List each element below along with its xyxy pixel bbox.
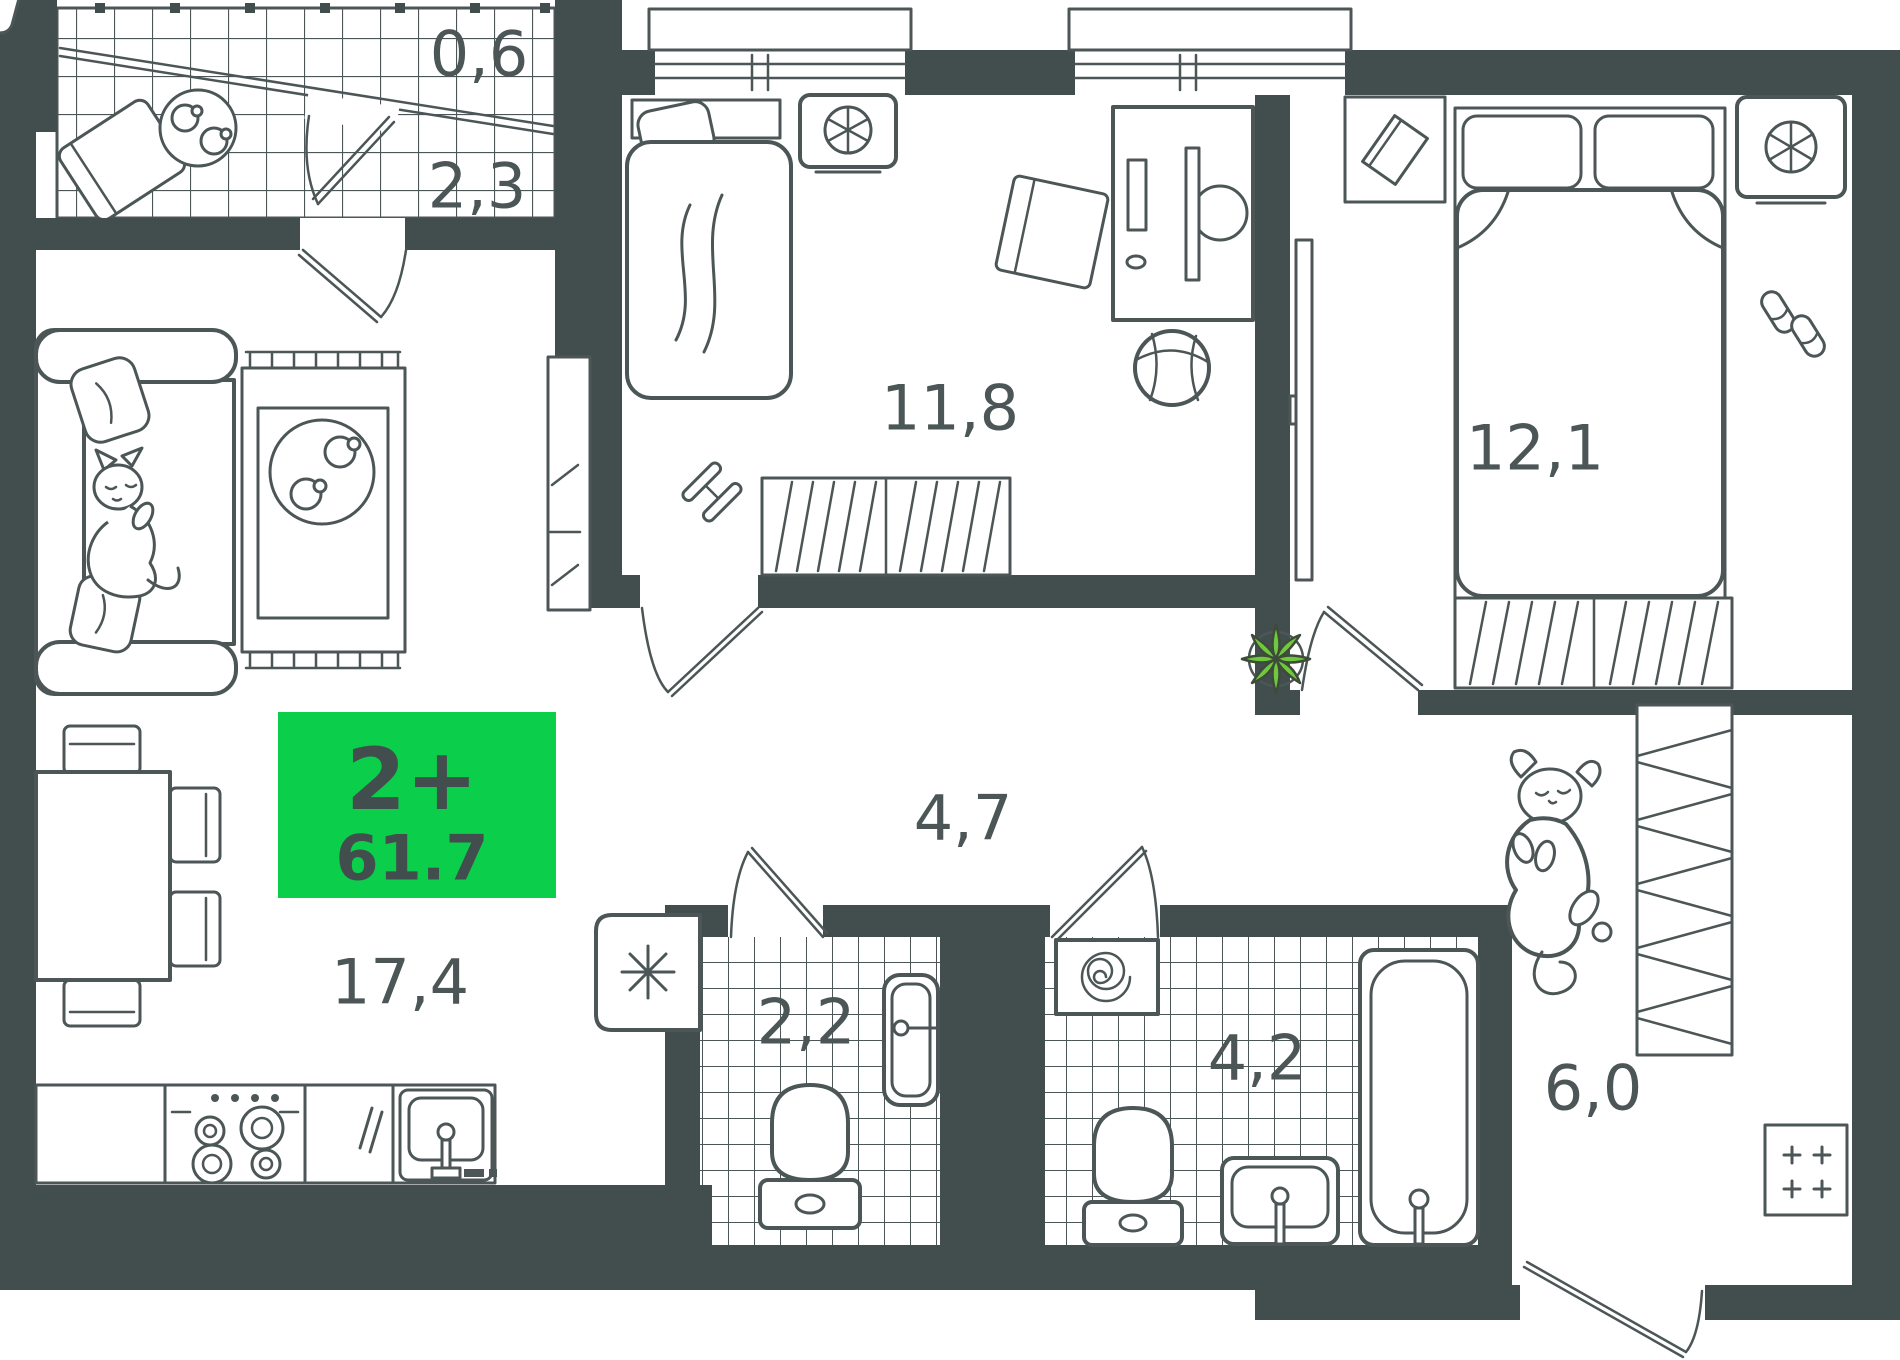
room-label-hallway: 4,7 <box>914 782 1013 855</box>
plant-icon <box>1242 625 1310 693</box>
slippers <box>1758 288 1828 360</box>
dumbbell <box>681 461 743 523</box>
drying-rack <box>1637 705 1732 1055</box>
coffee-table <box>270 420 374 524</box>
fan-unit-1 <box>800 95 896 172</box>
nightstand-book <box>1345 97 1445 202</box>
wc-toilet <box>760 1085 860 1228</box>
room-label-bedroom-2: 12,1 <box>1466 412 1604 485</box>
electric-panel <box>1765 1125 1847 1215</box>
wc-sink <box>884 975 938 1105</box>
double-bed <box>1455 108 1725 598</box>
entry-hall-items <box>1507 705 1847 1215</box>
bathroom-toilet <box>1084 1108 1182 1245</box>
balcony-table <box>160 90 236 166</box>
desk <box>1113 107 1253 320</box>
dog-icon <box>1507 750 1611 993</box>
snowflake-icon <box>622 946 674 998</box>
apartment-badge: 2+ 61.7 <box>278 712 556 898</box>
fridge <box>596 915 700 1030</box>
floor-plan: 0,6 2,3 11,8 12,1 4,7 17,4 2,2 4,2 6,0 2… <box>0 0 1900 1360</box>
badge-rooms-count: 2+ <box>346 730 478 830</box>
dining-table <box>36 726 220 1026</box>
badge-area-value: 61.7 <box>336 822 489 895</box>
chair-tilted <box>995 175 1109 289</box>
room-label-bedroom-1: 11,8 <box>881 372 1019 445</box>
room-label-loggia: 2,3 <box>428 150 527 223</box>
monitor <box>1186 148 1199 280</box>
window-bedroom-1 <box>649 9 911 95</box>
bedroom-2-furniture <box>1290 97 1845 688</box>
window-bedroom-2 <box>1069 9 1351 95</box>
room-label-loggia-upper: 0,6 <box>430 18 529 91</box>
room-label-bathroom: 4,2 <box>1208 1022 1307 1095</box>
desk-chair <box>1193 186 1247 240</box>
bedroom-1-furniture <box>627 95 1253 575</box>
washing-machine <box>1056 940 1158 1014</box>
bathtub <box>1360 950 1478 1245</box>
wardrobe-hatched <box>1455 598 1732 688</box>
tv-panel <box>1290 240 1312 580</box>
bathroom-sink <box>1222 1158 1338 1244</box>
basketball <box>1135 331 1209 405</box>
single-bed <box>627 99 791 398</box>
tall-cabinet <box>548 357 590 610</box>
room-label-entry-hall: 6,0 <box>1544 1052 1643 1125</box>
room-label-living-kitchen: 17,4 <box>331 946 469 1019</box>
dresser-hatched <box>762 478 1010 575</box>
room-label-wc: 2,2 <box>757 986 856 1059</box>
fan-unit-2 <box>1737 97 1845 203</box>
floor-plan-page: 0,6 2,3 11,8 12,1 4,7 17,4 2,2 4,2 6,0 2… <box>0 0 1900 1360</box>
rug <box>242 352 405 668</box>
sofa <box>36 330 236 694</box>
kitchen-sink <box>400 1090 497 1180</box>
